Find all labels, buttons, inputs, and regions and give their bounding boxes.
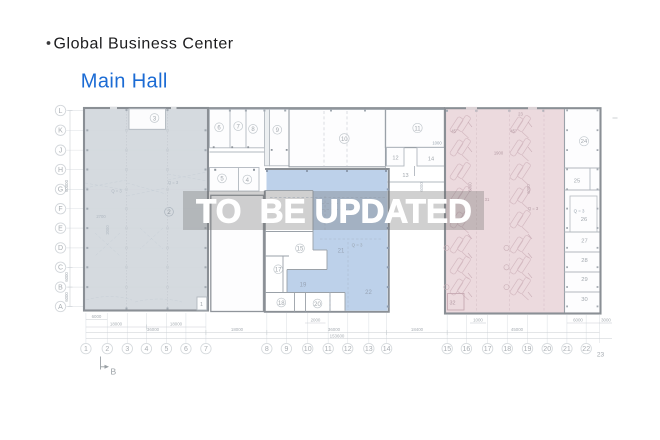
svg-text:16: 16 xyxy=(463,346,471,353)
svg-text:6000: 6000 xyxy=(92,314,102,319)
svg-text:25: 25 xyxy=(574,178,580,184)
svg-text:31: 31 xyxy=(485,197,490,202)
svg-text:14: 14 xyxy=(428,157,434,163)
svg-text:Main Hall: Main Hall xyxy=(81,71,168,93)
svg-text:Q = 3: Q = 3 xyxy=(111,189,122,194)
svg-text:D: D xyxy=(58,245,63,252)
svg-text:19: 19 xyxy=(524,346,532,353)
svg-text:J: J xyxy=(59,148,63,155)
svg-text:153600: 153600 xyxy=(330,333,345,338)
svg-text:20: 20 xyxy=(543,346,551,353)
svg-text:Q = 3: Q = 3 xyxy=(528,206,539,211)
svg-text:45°: 45° xyxy=(510,129,517,134)
svg-text:6000: 6000 xyxy=(64,272,69,282)
svg-text:21: 21 xyxy=(338,249,345,255)
svg-text:Q = 3: Q = 3 xyxy=(352,243,363,248)
svg-text:20: 20 xyxy=(314,302,321,308)
svg-text:30: 30 xyxy=(581,297,587,303)
svg-text:14: 14 xyxy=(383,346,391,353)
svg-text:9: 9 xyxy=(284,346,288,353)
svg-text:10: 10 xyxy=(341,137,348,143)
svg-text:32: 32 xyxy=(450,301,456,307)
svg-text:27: 27 xyxy=(581,238,587,244)
svg-text:11: 11 xyxy=(325,346,332,353)
svg-text:18000: 18000 xyxy=(170,322,183,327)
svg-text:B: B xyxy=(111,367,117,377)
svg-text:4: 4 xyxy=(144,346,148,353)
svg-text:45000: 45000 xyxy=(511,327,524,332)
svg-text:45°: 45° xyxy=(451,129,458,134)
svg-text:10: 10 xyxy=(304,346,312,353)
svg-text:E: E xyxy=(58,225,63,232)
svg-text:A: A xyxy=(58,304,63,311)
svg-text:22: 22 xyxy=(365,290,372,296)
svg-text:3000: 3000 xyxy=(601,318,611,323)
svg-text:1000: 1000 xyxy=(473,318,483,323)
svg-text:36000: 36000 xyxy=(328,327,341,332)
svg-text:B: B xyxy=(58,284,63,291)
svg-text:22: 22 xyxy=(582,346,590,353)
svg-text:1: 1 xyxy=(84,346,88,353)
svg-text:15: 15 xyxy=(297,247,304,253)
svg-text:21: 21 xyxy=(563,346,571,353)
svg-text:13: 13 xyxy=(365,346,373,353)
svg-text:19: 19 xyxy=(300,283,307,289)
svg-text:23: 23 xyxy=(597,352,605,359)
svg-text:18000: 18000 xyxy=(110,322,123,327)
svg-text:28: 28 xyxy=(581,258,587,264)
svg-text:6000: 6000 xyxy=(468,182,473,192)
svg-text:Q = 3: Q = 3 xyxy=(574,209,585,214)
svg-text:23: 23 xyxy=(518,112,523,117)
svg-text:6000: 6000 xyxy=(526,184,531,194)
svg-text:F: F xyxy=(58,206,62,213)
svg-text:5: 5 xyxy=(164,346,168,353)
svg-text:18400: 18400 xyxy=(411,327,424,332)
svg-text:18000: 18000 xyxy=(231,327,244,332)
svg-text:Q = 3: Q = 3 xyxy=(168,180,179,185)
svg-text:6000: 6000 xyxy=(419,182,424,192)
svg-text:C: C xyxy=(58,265,63,272)
svg-text:2000: 2000 xyxy=(311,318,321,323)
svg-text:6: 6 xyxy=(184,346,188,353)
svg-text:12: 12 xyxy=(392,155,398,161)
svg-text:13: 13 xyxy=(402,173,408,179)
svg-text:17: 17 xyxy=(275,268,282,274)
svg-text:L: L xyxy=(59,108,63,115)
svg-text:H: H xyxy=(58,167,63,174)
svg-text:Global Business Center: Global Business Center xyxy=(54,36,234,53)
svg-text:K: K xyxy=(58,128,63,135)
svg-text:18: 18 xyxy=(503,346,511,353)
svg-text:11: 11 xyxy=(414,126,421,132)
svg-text:TO BE UPDATED: TO BE UPDATED xyxy=(196,193,472,230)
svg-text:2000: 2000 xyxy=(105,225,110,235)
svg-text:60000: 60000 xyxy=(64,179,69,192)
svg-text:17: 17 xyxy=(484,346,492,353)
svg-text:1900: 1900 xyxy=(494,151,504,156)
svg-text:G: G xyxy=(58,187,63,194)
svg-text:6000: 6000 xyxy=(64,292,69,302)
svg-text:7: 7 xyxy=(204,346,208,353)
svg-text:12: 12 xyxy=(344,346,352,353)
svg-text:8: 8 xyxy=(265,346,269,353)
svg-text:15: 15 xyxy=(443,346,451,353)
svg-text:6000: 6000 xyxy=(573,318,583,323)
svg-text:3: 3 xyxy=(125,346,129,353)
svg-text:26: 26 xyxy=(581,217,587,223)
svg-text:36000: 36000 xyxy=(147,327,160,332)
svg-text:18: 18 xyxy=(278,301,285,307)
svg-text:29: 29 xyxy=(581,277,587,283)
svg-text:1000: 1000 xyxy=(432,141,442,146)
svg-text:2: 2 xyxy=(105,346,109,353)
svg-text:1: 1 xyxy=(200,302,203,308)
svg-text:2700: 2700 xyxy=(96,214,106,219)
